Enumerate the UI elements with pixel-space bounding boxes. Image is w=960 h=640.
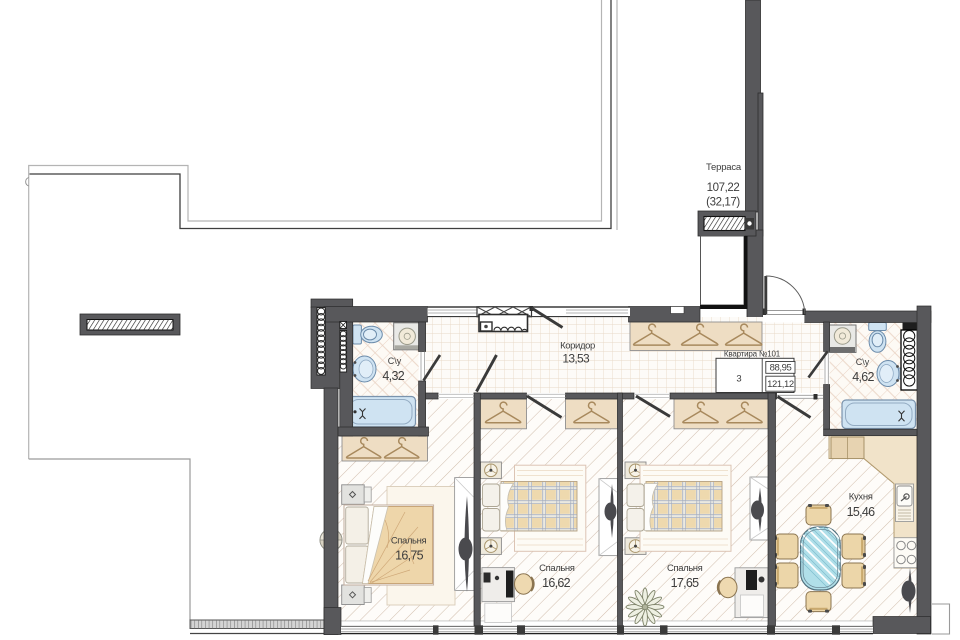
svg-text:Спальня: Спальня [539,563,575,574]
svg-text:Кухня: Кухня [849,492,873,503]
svg-text:Спальня: Спальня [391,536,427,547]
svg-text:17,65: 17,65 [671,576,700,590]
svg-text:107,22: 107,22 [707,182,740,194]
svg-text:Терраса: Терраса [706,162,742,173]
svg-text:4,32: 4,32 [382,369,404,383]
svg-text:15,46: 15,46 [847,505,876,519]
svg-text:Спальня: Спальня [667,563,703,574]
svg-text:С\у: С\у [388,356,402,366]
svg-text:16,62: 16,62 [542,576,571,590]
svg-text:С\у: С\у [856,357,870,367]
svg-text:4,62: 4,62 [852,370,874,384]
svg-text:Квартира №101: Квартира №101 [724,350,781,359]
svg-text:Коридор: Коридор [560,341,595,352]
svg-text:(32,17): (32,17) [706,197,740,209]
svg-text:88,95: 88,95 [770,363,792,374]
svg-text:3: 3 [736,374,741,385]
svg-text:16,75: 16,75 [395,549,424,563]
svg-text:13,53: 13,53 [562,352,590,366]
svg-text:121,12: 121,12 [767,379,794,390]
